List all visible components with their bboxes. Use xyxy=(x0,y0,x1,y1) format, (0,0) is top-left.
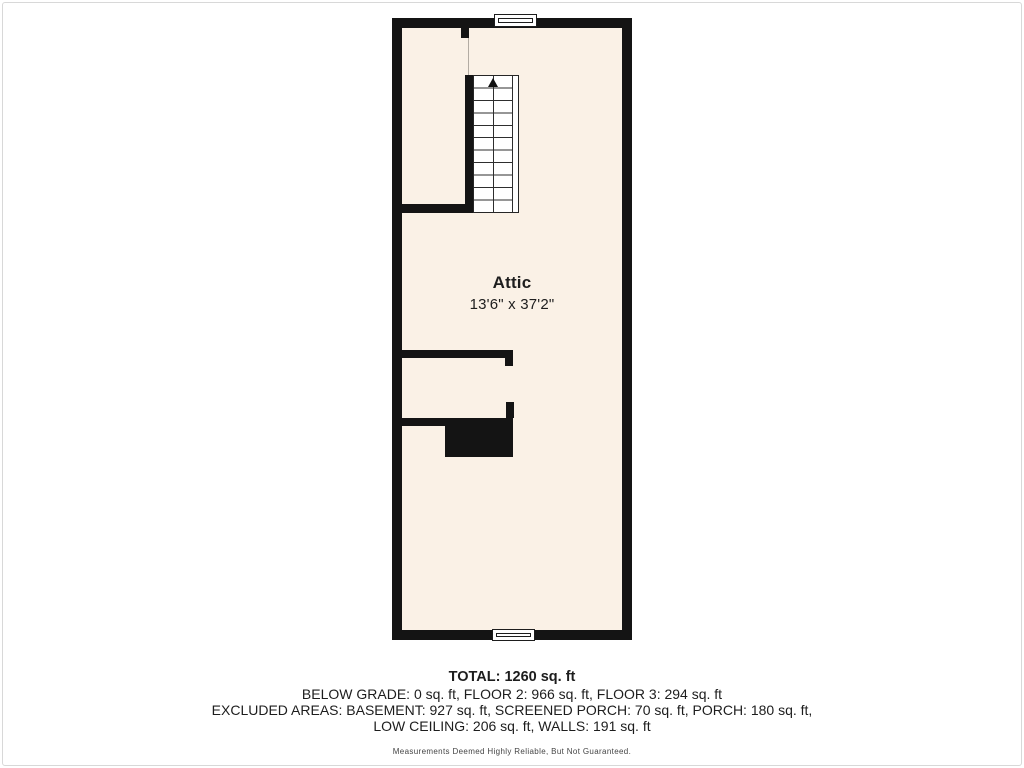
summary-line: LOW CEILING: 206 sq. ft, WALLS: 191 sq. … xyxy=(0,718,1024,734)
stair-opening-line xyxy=(468,38,469,75)
window-symbol-bottom xyxy=(492,629,535,641)
room-label: Attic 13'6" x 37'2" xyxy=(392,273,632,313)
summary-total: TOTAL: 1260 sq. ft xyxy=(0,669,1024,686)
wall-door-jamb xyxy=(506,402,514,418)
window-pane xyxy=(496,633,531,637)
staircase xyxy=(473,75,519,213)
wall-closet-top-stub xyxy=(505,358,513,366)
area-summary: TOTAL: 1260 sq. ft BELOW GRADE: 0 sq. ft… xyxy=(0,669,1024,756)
stair-center-line xyxy=(493,76,494,212)
wall-closet-bottom xyxy=(402,418,513,426)
floor-plan-page: Attic 13'6" x 37'2" TOTAL: 1260 sq. ft B… xyxy=(0,0,1024,768)
chimney-block xyxy=(445,426,513,457)
wall-stub-top xyxy=(461,28,469,38)
wall-closet-top xyxy=(402,350,513,358)
wall-stair-landing xyxy=(402,204,473,213)
summary-line: EXCLUDED AREAS: BASEMENT: 927 sq. ft, SC… xyxy=(0,702,1024,718)
room-dimensions: 13'6" x 37'2" xyxy=(392,296,632,313)
disclaimer: Measurements Deemed Highly Reliable, But… xyxy=(0,747,1024,756)
window-pane xyxy=(498,18,533,23)
summary-line: BELOW GRADE: 0 sq. ft, FLOOR 2: 966 sq. … xyxy=(0,686,1024,702)
room-name: Attic xyxy=(392,273,632,293)
window-symbol-top xyxy=(494,14,537,27)
stair-left-wall xyxy=(465,75,473,213)
stairs-up-arrow-icon xyxy=(488,78,498,87)
